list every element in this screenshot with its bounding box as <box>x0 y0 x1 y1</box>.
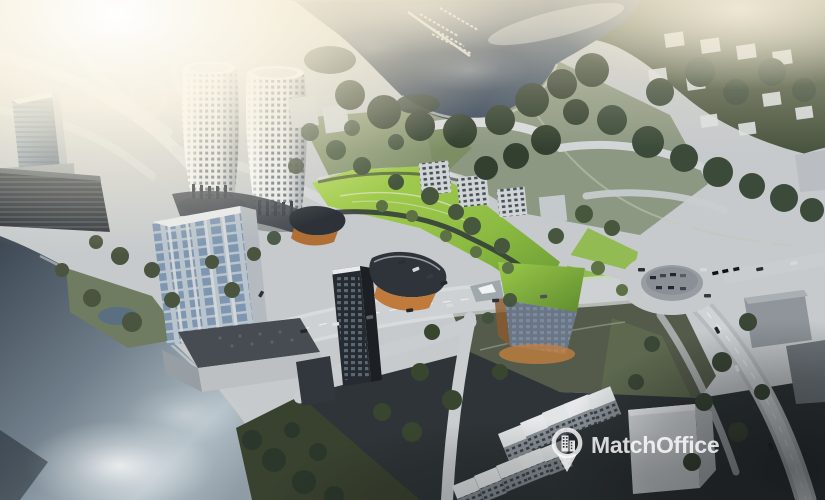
aerial-rendering: MatchOffice <box>0 0 825 500</box>
atmosphere <box>0 0 825 500</box>
rendering-canvas <box>0 0 825 500</box>
